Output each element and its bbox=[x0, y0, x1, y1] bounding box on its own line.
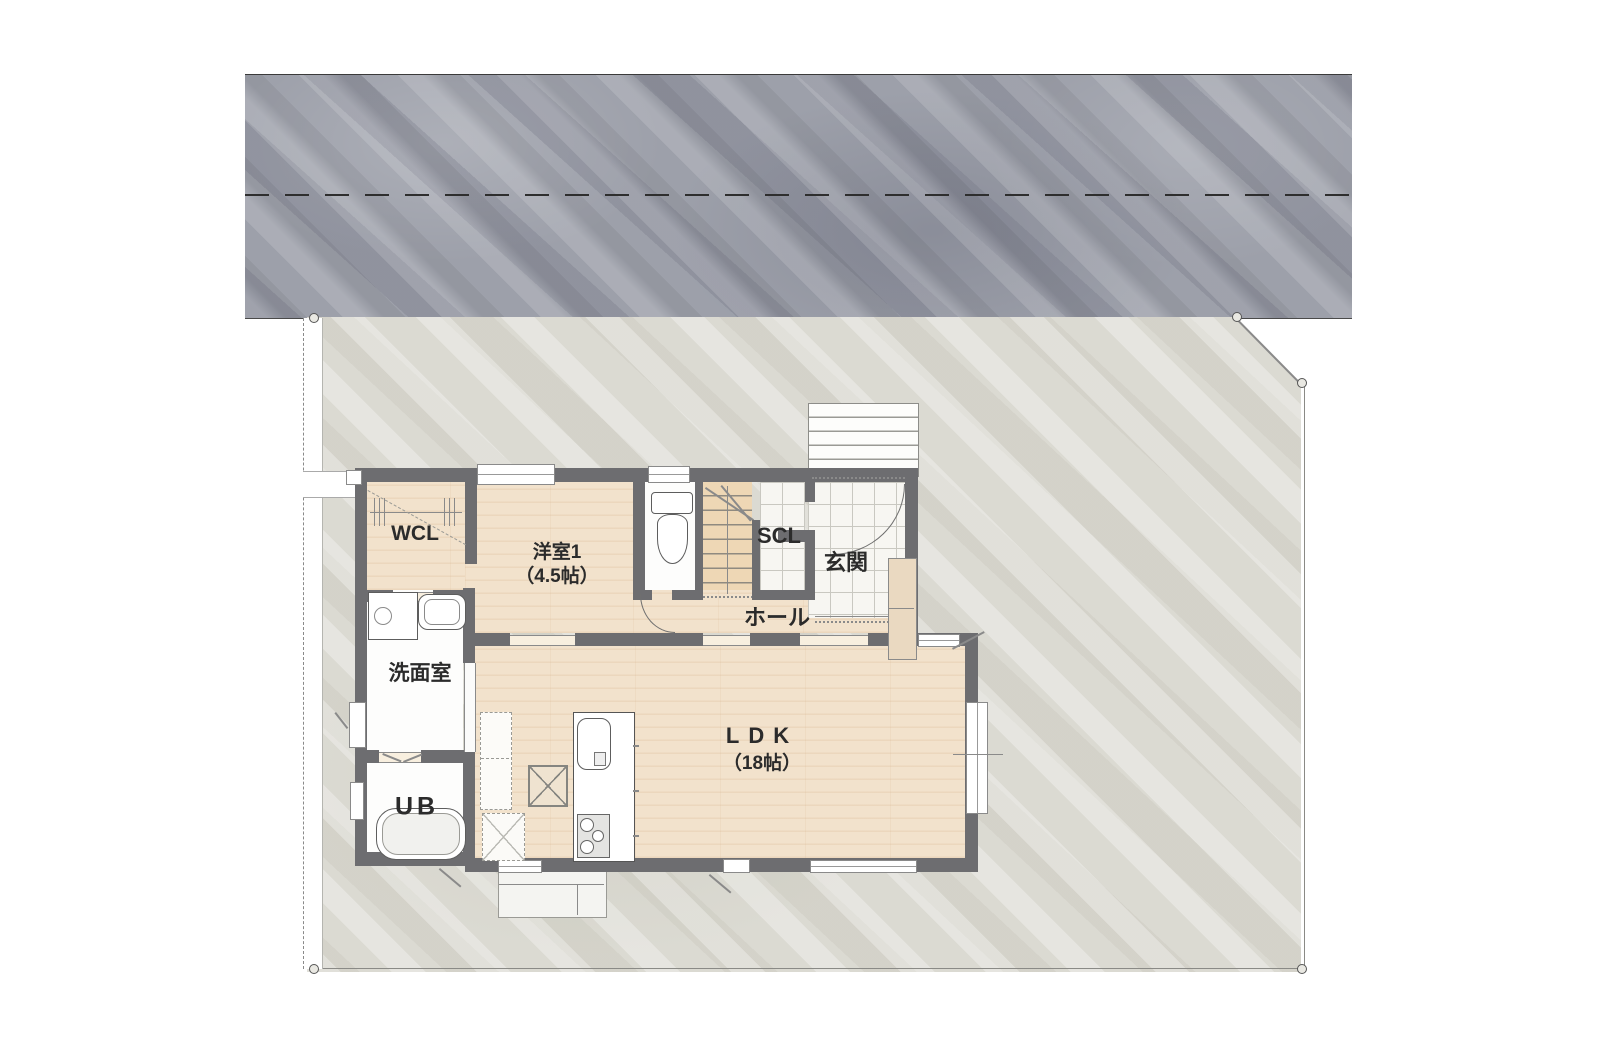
terrace-step bbox=[498, 868, 607, 918]
boundary-right-line bbox=[1304, 383, 1305, 969]
survey-point bbox=[1297, 964, 1307, 974]
wall-scl-entrance bbox=[805, 482, 815, 502]
terrace-divider-line bbox=[577, 885, 578, 915]
wall-ldk-top bbox=[750, 633, 800, 646]
wall-wcl-bedroom1 bbox=[465, 482, 477, 564]
road-centerline bbox=[245, 194, 1352, 196]
room-label-wcl: WCL bbox=[391, 522, 439, 546]
sliding-door-bedroom1-ldk bbox=[510, 635, 575, 646]
sliding-door-hall-ldk bbox=[703, 635, 750, 646]
wall-top bbox=[355, 468, 918, 482]
room-label-scl: SCL bbox=[757, 523, 801, 549]
sliding-door-washroom-ldk bbox=[464, 663, 476, 752]
pantry-divider bbox=[481, 758, 509, 759]
pantry-cabinet-dashed bbox=[480, 712, 512, 810]
room-label-ldk-size: （18帖） bbox=[723, 750, 801, 778]
room-label-ldk-name: LDK bbox=[723, 722, 801, 750]
washing-machine-dial bbox=[374, 607, 392, 625]
window-ldk-bottom-small bbox=[723, 859, 750, 873]
toilet-tank bbox=[651, 492, 693, 514]
window-toilet-top bbox=[648, 466, 690, 483]
stove-burner bbox=[580, 818, 594, 832]
room-label-washroom: 洗面室 bbox=[389, 657, 452, 687]
storage-space-dashed bbox=[482, 813, 525, 861]
wcl-hanger bbox=[454, 498, 455, 526]
wall-washroom-bath bbox=[365, 750, 379, 763]
opening-hall-ldk bbox=[800, 635, 868, 646]
room-label-bedroom1: 洋室1 （4.5帖） bbox=[515, 541, 598, 589]
stove-burner bbox=[592, 830, 604, 842]
survey-point bbox=[309, 313, 319, 323]
kitchen-faucet bbox=[594, 752, 606, 766]
sliding-window-ldk-bottom bbox=[810, 860, 917, 873]
room-label-hall: ホール bbox=[744, 600, 810, 632]
terrace-step-line bbox=[499, 884, 604, 885]
counter-seat-tick bbox=[633, 835, 639, 837]
room-ldk-floor bbox=[465, 644, 965, 858]
stove-burner bbox=[580, 840, 594, 854]
wcl-hanger bbox=[379, 498, 380, 526]
room-label-bedroom1-size: （4.5帖） bbox=[515, 565, 598, 589]
survey-point bbox=[309, 964, 319, 974]
porch-threshold-dotted bbox=[812, 477, 905, 479]
room-label-entrance: 玄関 bbox=[824, 545, 868, 577]
refrigerator-space bbox=[528, 765, 568, 807]
wall-ldk-top bbox=[575, 633, 703, 646]
room-label-ldk: LDK （18帖） bbox=[723, 722, 801, 778]
road bbox=[245, 74, 1352, 319]
counter-seat-tick bbox=[633, 745, 639, 747]
window-wcl-left bbox=[346, 470, 362, 485]
door-washroom-exterior bbox=[349, 702, 366, 748]
wall-washroom-bath bbox=[421, 750, 465, 763]
boundary-left-strip bbox=[303, 318, 323, 969]
wall-toilet-left bbox=[633, 482, 645, 600]
boundary-bottom-line bbox=[309, 968, 1305, 969]
door-ldk-terrace bbox=[498, 860, 542, 873]
wcl-hanger bbox=[444, 498, 445, 526]
toilet-bowl bbox=[657, 514, 688, 564]
wall-toilet-bottom bbox=[672, 590, 703, 600]
counter-seat-tick bbox=[633, 790, 639, 792]
entrance-porch-steps bbox=[808, 403, 919, 477]
floor-plan-canvas: WCL 洋室1 （4.5帖） SCL 玄関 ホール 洗面室 UB LDK （18… bbox=[0, 0, 1600, 1056]
survey-point bbox=[1232, 312, 1242, 322]
window-ldk-top-right bbox=[918, 634, 960, 647]
wall-toilet-stairs bbox=[695, 482, 703, 600]
survey-point bbox=[1297, 378, 1307, 388]
room-label-bath: UB bbox=[395, 793, 439, 822]
room-label-bedroom1-name: 洋室1 bbox=[515, 541, 598, 565]
shoe-cabinet-shelf-line bbox=[889, 608, 914, 609]
wcl-hanger bbox=[384, 498, 385, 526]
wcl-hanger bbox=[374, 498, 375, 526]
window-bedroom1-top bbox=[477, 464, 555, 485]
shoe-cabinet bbox=[888, 558, 917, 660]
wash-basin-bowl bbox=[424, 599, 460, 625]
window-ldk-right bbox=[966, 702, 988, 814]
window-bath-left bbox=[350, 782, 364, 820]
wcl-hanger bbox=[449, 498, 450, 526]
stairs-break-line bbox=[703, 596, 753, 598]
wall-scl-bottom bbox=[752, 590, 815, 600]
window-ldk-right-tick bbox=[953, 754, 1003, 755]
wall-scl-entrance bbox=[805, 542, 815, 590]
